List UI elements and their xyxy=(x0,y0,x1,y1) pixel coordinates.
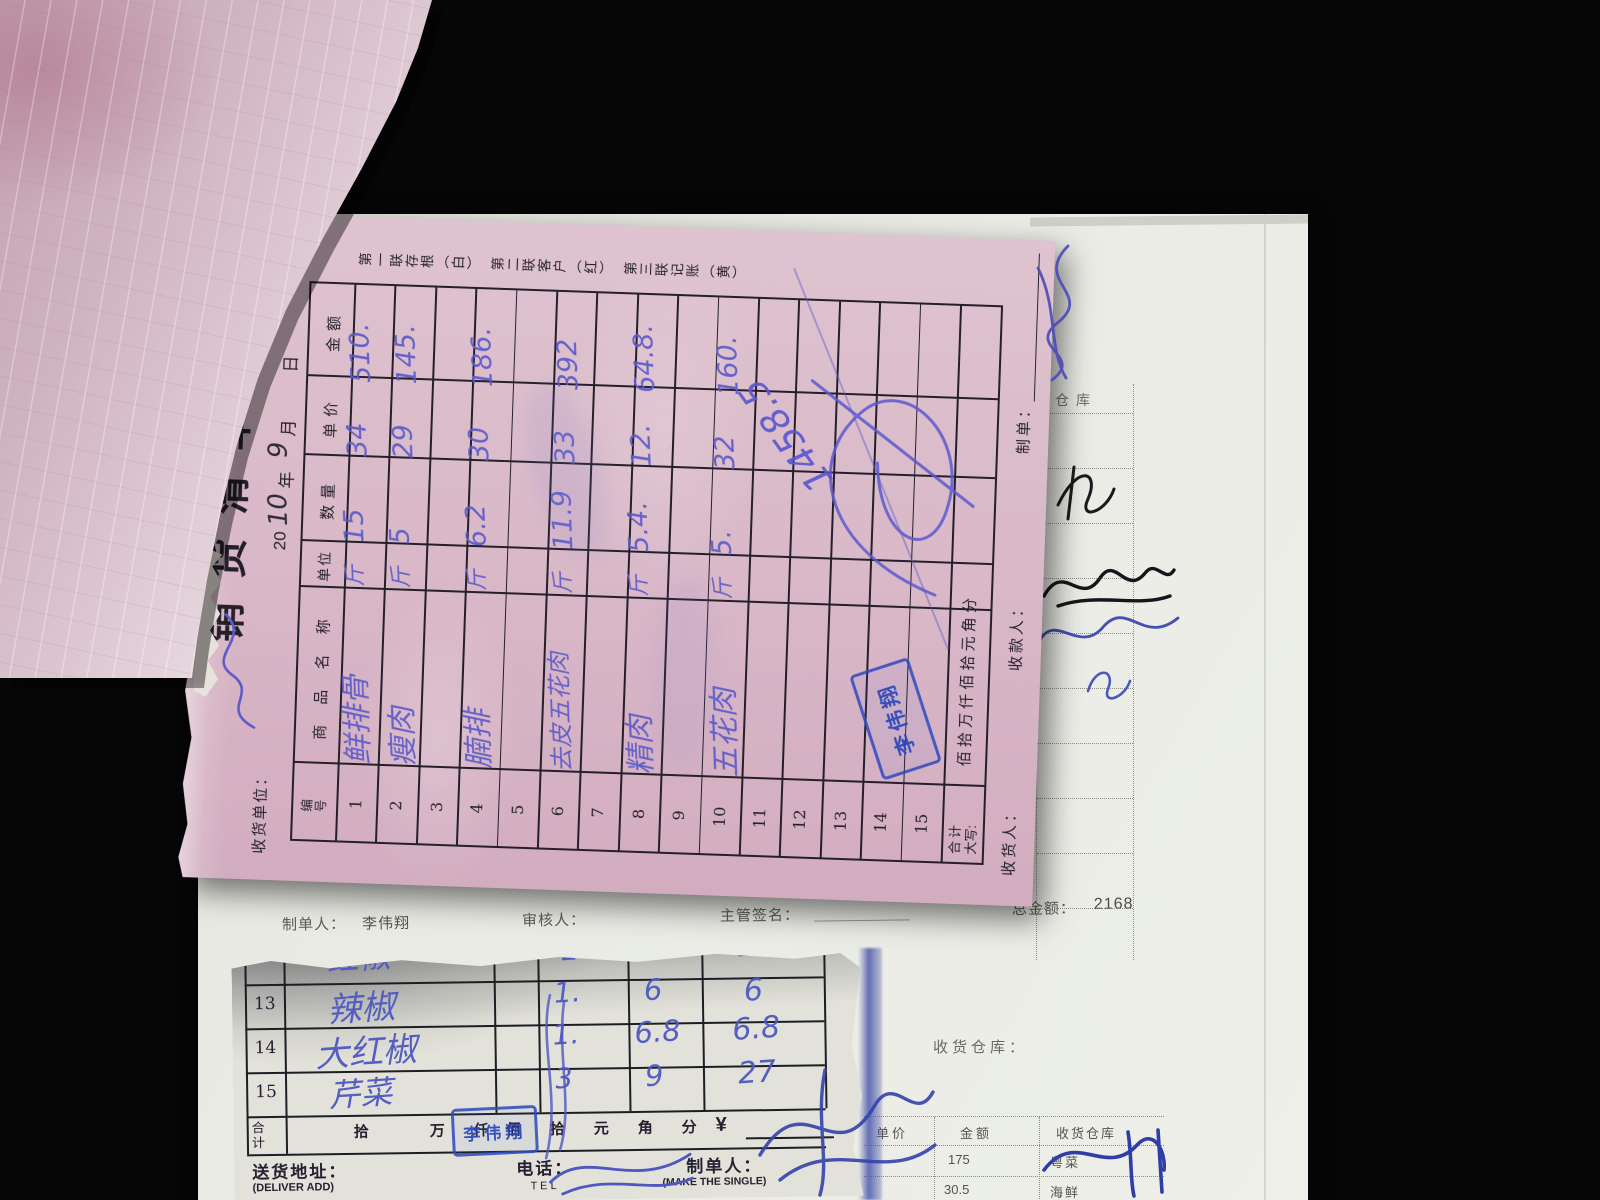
handwritten-amount: 145. xyxy=(390,324,423,385)
maker-label: 制单人： xyxy=(282,913,346,935)
sheet-crease xyxy=(1264,214,1266,1200)
handwritten-qty: 5 xyxy=(384,527,416,545)
row-number: 6 xyxy=(547,774,569,849)
handwritten-name: 去皮五花肉 xyxy=(539,651,578,772)
table-vline xyxy=(627,949,631,1111)
row-number: 15 xyxy=(910,786,932,861)
row-number: 5 xyxy=(506,772,528,847)
auditor-label: 审核人： xyxy=(522,909,586,931)
row-number: 14 xyxy=(254,1038,276,1058)
signature-scribble-blue xyxy=(1034,604,1184,660)
row-number: 4 xyxy=(466,771,488,846)
col-header-unit: 单位 xyxy=(314,549,335,582)
handwritten-unit: 斤 xyxy=(705,577,738,600)
handwritten-price: 32 xyxy=(709,435,741,470)
handwritten-name: 瘦肉 xyxy=(377,706,423,767)
tel-scribble xyxy=(542,1140,698,1200)
photo-of-receipts: 制单人： 李伟翔 审核人： 主管签名： 总金额： 2168 仓库 收货仓库： 单… xyxy=(0,0,1600,1200)
row-number: 12 xyxy=(789,782,811,857)
table-hline xyxy=(497,290,518,846)
col-header-amount: 金额 xyxy=(960,1123,992,1142)
warehouse-col-label: 仓库 xyxy=(1055,390,1097,410)
row-number: 3 xyxy=(426,770,448,845)
handwritten-price: 30 xyxy=(463,426,495,461)
receiver-label: 收货人： xyxy=(997,804,1021,877)
item-amount: 6 xyxy=(743,973,764,1009)
dotted-row xyxy=(1037,852,1133,854)
signature-scribble-blue xyxy=(1028,1122,1183,1200)
supervisor-sign-line xyxy=(814,919,910,921)
dotted-row xyxy=(1037,797,1133,799)
date-century: 20 xyxy=(270,531,291,551)
receiver-unit-label: 收货单位： xyxy=(248,768,272,854)
dotted-row xyxy=(1037,907,1133,909)
item-price: 6 xyxy=(643,972,664,1007)
handwritten-qty: 5. xyxy=(706,529,738,556)
handwritten-name: 腩排 xyxy=(453,708,499,769)
row-number: 14 xyxy=(870,785,892,860)
date-year-char: 年 xyxy=(272,471,298,489)
caps-digit: 拾 xyxy=(354,1121,369,1142)
item-name: 芹菜 xyxy=(327,1067,394,1117)
row-number: 1 xyxy=(345,767,367,842)
row-number: 9 xyxy=(668,778,690,853)
table-vline xyxy=(493,951,497,1113)
handwritten-price: 29 xyxy=(387,424,419,459)
handwritten-qty: 6.2 xyxy=(460,504,492,548)
address-label: 送货地址： xyxy=(252,1157,347,1183)
maker-name: 李伟翔 xyxy=(362,912,410,934)
item-price: 9 xyxy=(644,1058,665,1093)
row-number: 13 xyxy=(254,994,276,1014)
handwritten-qty: 5.4. xyxy=(622,501,655,554)
stamp-name: 李伟翔 xyxy=(463,1117,527,1145)
caps-digit: 分 xyxy=(682,1116,697,1137)
receiver-unit-scribble xyxy=(210,606,273,738)
warehouse-heading: 收货仓库： xyxy=(933,1036,1028,1057)
handwritten-qty: 15 xyxy=(338,508,370,543)
col-header-price: 单价 xyxy=(319,396,341,439)
total-label: 合计 xyxy=(252,1120,268,1150)
big-signature-scrawl xyxy=(784,330,989,627)
pink-sales-form-wrap: 销货清单 № 006 收货单位： 20 10 年 9 月 日 第一联存根（白） … xyxy=(177,211,1056,906)
date-year-handwritten: 10 xyxy=(263,493,294,527)
amount-cell: 30.5 xyxy=(944,1182,969,1197)
row-number: 13 xyxy=(830,784,852,859)
handwritten-amount: 186. xyxy=(466,327,499,388)
amount-cell: 175 xyxy=(948,1152,970,1167)
address-label-en: (DELIVER ADD) xyxy=(252,1181,334,1194)
date-month-char: 月 xyxy=(274,419,300,437)
dotted-row xyxy=(1037,412,1133,414)
currency-symbol: ¥ xyxy=(716,1114,727,1137)
stamp-name: 李伟翔 xyxy=(870,679,922,760)
handwritten-amount: 510. xyxy=(344,322,377,383)
pink-sales-form: 销货清单 № 006 收货单位： 20 10 年 9 月 日 第一联存根（白） … xyxy=(177,211,1056,906)
copy-note: 第一联存根（白） 第二联客户（红） 第三联记账（黄） xyxy=(358,251,828,287)
handwritten-amount: 64.8. xyxy=(628,324,661,394)
handwritten-unit: 斤 xyxy=(337,564,370,587)
row-number: 10 xyxy=(708,779,730,854)
supervisor-label: 主管签名： xyxy=(720,904,800,926)
warehouse-entry-scribble-black xyxy=(1044,455,1122,527)
item-price: 6.8 xyxy=(633,1013,681,1050)
row-number: 2 xyxy=(385,768,407,843)
table-vline xyxy=(701,948,705,1110)
col-header-amount: 金额 xyxy=(322,310,344,353)
maker-label: 制单： xyxy=(1012,400,1035,455)
big-signature-scribble xyxy=(735,1060,940,1200)
handwritten-name: 鲜排骨 xyxy=(331,674,378,765)
handwritten-price: 12. xyxy=(625,423,657,467)
col-header-no: 编 号 xyxy=(300,797,329,814)
handwritten-name: 精肉 xyxy=(614,714,660,775)
row-number: 7 xyxy=(587,775,609,850)
row-number: 8 xyxy=(628,777,650,852)
item-amount: 6.8 xyxy=(731,1010,781,1048)
handwritten-unit: 斤 xyxy=(459,569,492,592)
dotted-row xyxy=(1037,742,1133,744)
caps-label: 大写: xyxy=(960,825,980,855)
pen-strokes xyxy=(528,990,578,1166)
handwritten-unit: 斤 xyxy=(545,572,578,595)
handwritten-unit: 斤 xyxy=(383,566,416,589)
handwritten-amount: 392 xyxy=(552,338,585,391)
small-scribble-blue xyxy=(1078,655,1144,707)
date-month-handwritten: 9 xyxy=(263,441,294,459)
row-number: 15 xyxy=(255,1082,277,1102)
col-header-qty: 数量 xyxy=(316,478,338,521)
caps-digit: 元 xyxy=(594,1117,609,1138)
name-stamp: 李伟翔 xyxy=(451,1105,539,1157)
caps-digit: 万 xyxy=(430,1120,445,1141)
caps-digit: 角 xyxy=(638,1117,653,1138)
date-line: 20 10 年 9 月 日 xyxy=(262,550,296,551)
row-number: 11 xyxy=(749,781,771,856)
handwritten-price: 34 xyxy=(341,422,373,457)
maker-signature-scribble xyxy=(1008,238,1108,388)
handwritten-unit: 斤 xyxy=(621,574,654,597)
payee-label: 收款人： xyxy=(1004,599,1028,672)
